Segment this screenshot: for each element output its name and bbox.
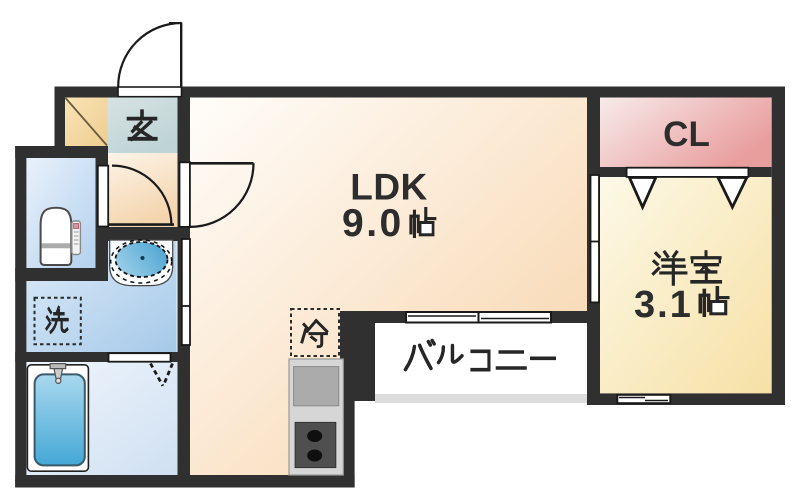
svg-text:9.0: 9.0 xyxy=(342,202,404,245)
svg-text:CL: CL xyxy=(663,115,710,154)
svg-text:3.1: 3.1 xyxy=(634,284,693,326)
